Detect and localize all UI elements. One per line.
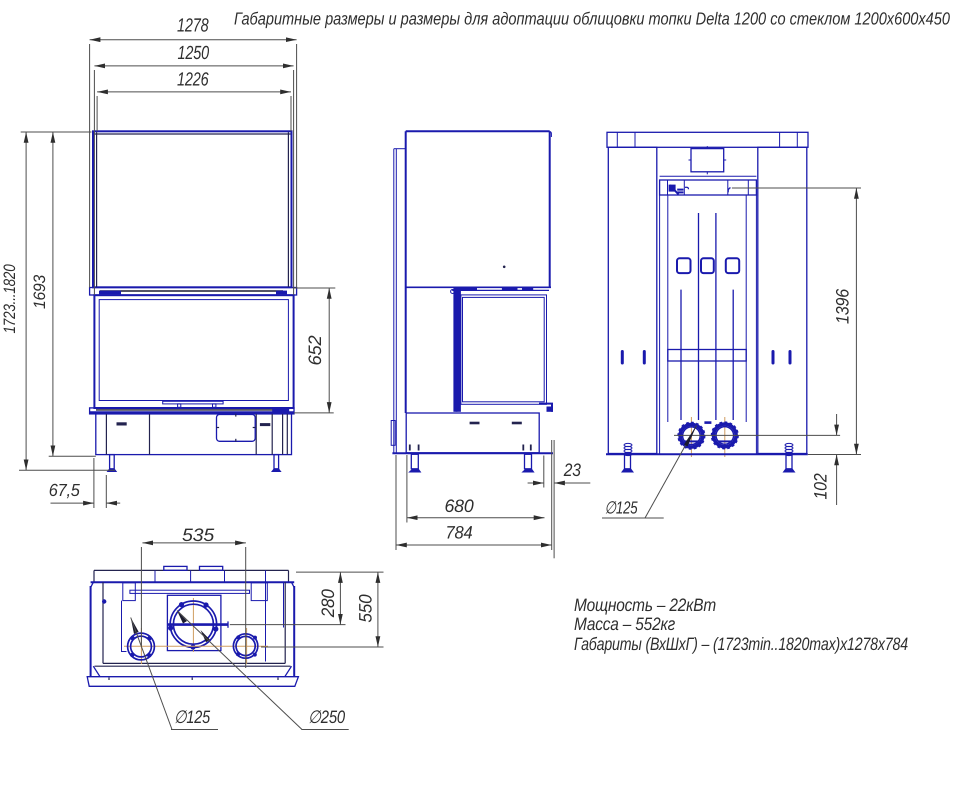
svg-text:1226: 1226	[177, 70, 209, 91]
svg-text:550: 550	[356, 594, 376, 622]
svg-text:1396: 1396	[833, 288, 853, 324]
svg-text:Мощность – 22кВт: Мощность – 22кВт	[574, 595, 716, 615]
svg-text:Габариты (ВхШхГ) – (1723min..1: Габариты (ВхШхГ) – (1723min..1820max)х12…	[574, 634, 908, 654]
svg-text:680: 680	[445, 496, 474, 516]
svg-text:1250: 1250	[178, 43, 210, 64]
svg-text:∅125: ∅125	[605, 498, 638, 518]
svg-text:1278: 1278	[177, 15, 209, 36]
svg-text:∅125: ∅125	[174, 707, 211, 727]
svg-text:784: 784	[446, 523, 473, 543]
svg-text:Масса – 552кг: Масса – 552кг	[574, 614, 675, 634]
svg-text:535: 535	[182, 525, 215, 545]
svg-text:1723...1820: 1723...1820	[1, 264, 19, 334]
svg-text:102: 102	[811, 473, 831, 499]
svg-text:1693: 1693	[31, 274, 49, 309]
svg-text:67,5: 67,5	[49, 480, 80, 500]
svg-text:Габаритные размеры и размеры д: Габаритные размеры и размеры для адоптац…	[234, 9, 950, 29]
svg-text:23: 23	[563, 460, 581, 480]
svg-text:∅250: ∅250	[308, 707, 345, 727]
svg-text:280: 280	[318, 589, 338, 618]
svg-text:652: 652	[305, 335, 325, 365]
